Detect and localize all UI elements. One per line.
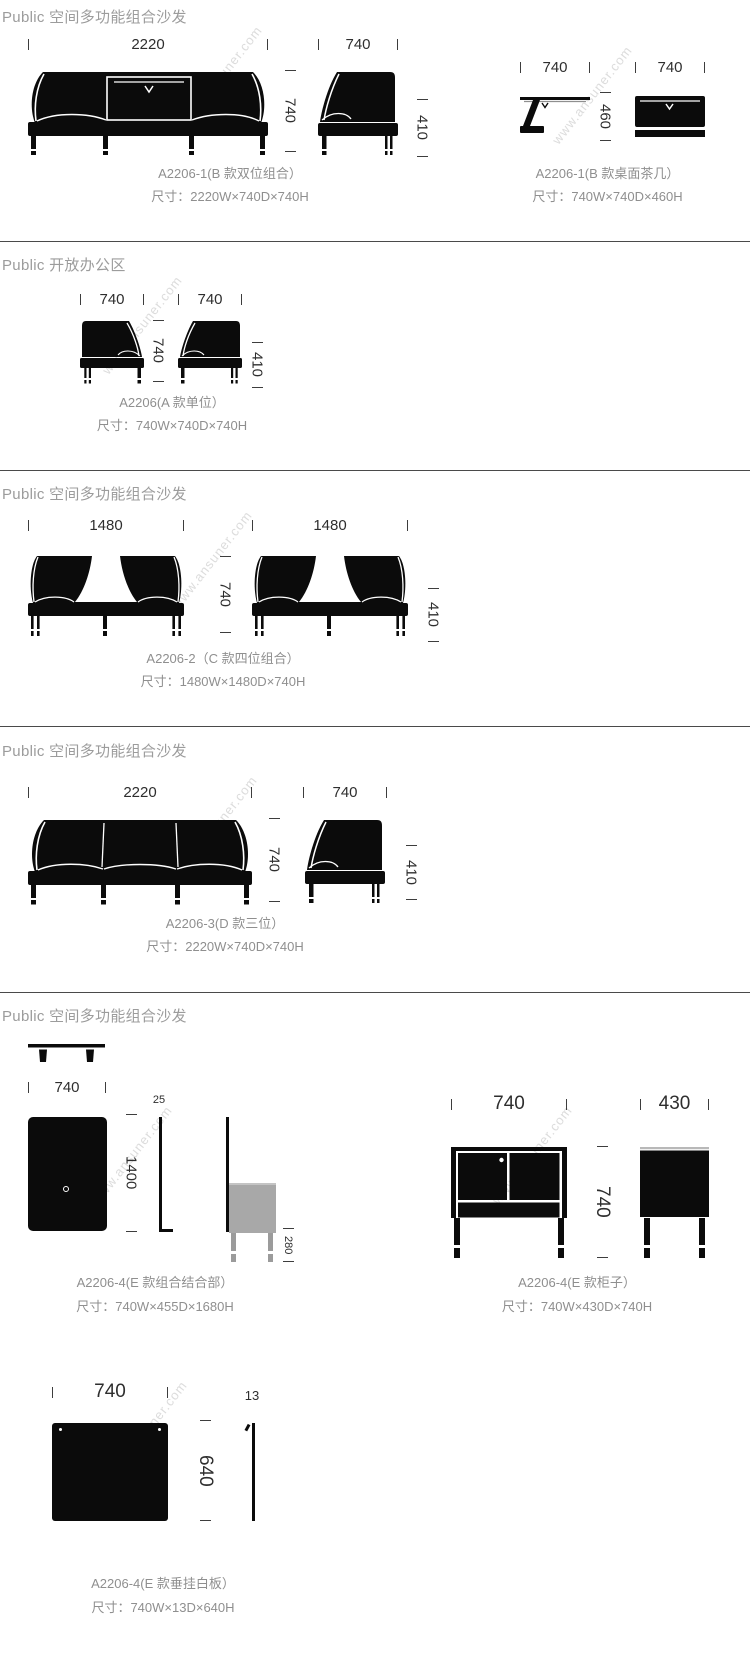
dim-depth: 740: [150, 320, 166, 382]
whiteboard-side-drawing: [252, 1423, 255, 1521]
item-name: A2206-4(E 款柜子）: [427, 1272, 727, 1291]
cabinet-leg: [268, 1233, 273, 1251]
tick: [167, 1387, 168, 1398]
dim-sofa-width: 2220: [28, 783, 252, 801]
dim-sofa-height: 740: [282, 70, 298, 152]
back-to-back-sofa-drawing: [28, 553, 184, 639]
tick: [153, 381, 164, 382]
dim-cabinet-height: 740: [594, 1146, 610, 1258]
dim-value: 740: [217, 582, 234, 607]
section-header: Public 空间多功能组合沙发: [2, 1005, 187, 1026]
screen-panel-foot: [159, 1229, 173, 1232]
tea-table-front-view-drawing: [635, 95, 705, 141]
tick: [386, 787, 387, 798]
section-divider: [0, 726, 750, 727]
dim-value: 1480: [29, 517, 183, 534]
tick: [708, 1099, 709, 1110]
dim-seat-height: 410: [403, 845, 419, 900]
tea-table-side-view-drawing: [520, 95, 590, 141]
tick: [597, 1257, 608, 1258]
dim-value: 410: [403, 860, 420, 885]
section-header: Public 空间多功能组合沙发: [2, 483, 187, 504]
section-divider: [0, 992, 750, 993]
two-seat-sofa-front-drawing: [28, 70, 268, 155]
tick: [220, 556, 231, 557]
whiteboard-front-drawing: [52, 1423, 168, 1521]
tick: [283, 1261, 294, 1262]
dim-seat-height: 410: [414, 99, 430, 157]
tick: [126, 1114, 137, 1115]
dim-seat-height: 410: [425, 588, 441, 642]
dim-sofa-height: 740: [266, 818, 282, 902]
sofa-side-view-drawing: [305, 818, 385, 903]
dim-side-width: 740: [303, 783, 387, 801]
panel-grommet: [63, 1186, 69, 1192]
dim-shelf-height: 280: [280, 1228, 296, 1262]
tick: [105, 1082, 106, 1093]
cabinet-leg-foot: [268, 1254, 273, 1262]
tick: [183, 520, 184, 531]
dim-value: 740: [319, 36, 397, 53]
dim-value: 740: [521, 59, 589, 76]
tick: [428, 641, 439, 642]
tick: [600, 92, 611, 93]
tick: [267, 39, 268, 50]
dim-board-thickness: 13: [238, 1388, 266, 1403]
item-size: 尺寸：740W×740D×460H: [465, 186, 750, 205]
dim-chair2-width: 740: [178, 290, 242, 308]
section-header: Public 空间多功能组合沙发: [2, 740, 187, 761]
hanging-hole: [158, 1428, 161, 1431]
dim-value: 410: [249, 352, 266, 377]
item-name: A2206-3(D 款三位）: [75, 913, 375, 932]
item-size: 尺寸：740W×430D×740H: [427, 1296, 727, 1315]
tick: [428, 588, 439, 589]
section-divider: [0, 241, 750, 242]
dim-value: 740: [636, 59, 704, 76]
dim-seat-height: 410: [249, 342, 265, 388]
dim-value: 740: [591, 1186, 613, 1218]
dim-value: 740: [53, 1381, 167, 1403]
hanging-hole: [59, 1428, 62, 1431]
dim-value: 2220: [29, 784, 251, 801]
tick: [417, 156, 428, 157]
bench-top-view-drawing: [28, 1044, 105, 1063]
dim-right-width: 1480: [252, 516, 408, 534]
item-size: 尺寸：740W×455D×1680H: [5, 1296, 305, 1315]
tick: [704, 62, 705, 73]
tick: [251, 787, 252, 798]
tick: [285, 151, 296, 152]
dim-left-width: 1480: [28, 516, 184, 534]
dim-cabinet-depth: 430: [640, 1095, 709, 1113]
dim-value: 740: [282, 98, 299, 123]
sofa-side-view-drawing: [318, 70, 398, 155]
dim-sofa-width: 2220: [28, 35, 268, 53]
dim-value: 740: [150, 338, 167, 363]
dim-value: 740: [266, 847, 283, 872]
item-size: 尺寸：740W×740D×740H: [22, 415, 322, 434]
dim-value: 740: [179, 291, 241, 308]
tick: [600, 140, 611, 141]
item-name: A2206-1(B 款双位组合）: [80, 163, 380, 182]
section-divider: [0, 470, 750, 471]
dim-side-width: 740: [318, 35, 398, 53]
dim-value: 430: [641, 1093, 708, 1115]
dim-board-height: 640: [197, 1420, 213, 1521]
screen-panel-side-drawing: [159, 1117, 162, 1231]
tick: [285, 70, 296, 71]
dim-value: 740: [29, 1079, 105, 1096]
lounge-chair-side-view-drawing: [178, 320, 242, 384]
cabinet-leg: [231, 1233, 236, 1251]
tick: [417, 99, 428, 100]
tick: [153, 320, 164, 321]
item-size: 尺寸：740W×13D×640H: [13, 1597, 313, 1616]
tick: [407, 520, 408, 531]
dim-value: 740: [304, 784, 386, 801]
dim-value: 410: [425, 602, 442, 627]
dim-table-height: 460: [597, 92, 613, 141]
dim-value: 740: [81, 291, 143, 308]
three-seat-sofa-front-drawing: [28, 818, 252, 905]
tick: [252, 342, 263, 343]
item-name: A2206(A 款单位）: [22, 392, 322, 411]
section-header: Public 空间多功能组合沙发: [2, 6, 187, 27]
item-name: A2206-4(E 款垂挂白板）: [13, 1573, 313, 1592]
spec-sheet-page: www.ansuner.com www.ansuner.com www.ansu…: [0, 0, 750, 1659]
tick: [269, 818, 280, 819]
tick: [406, 845, 417, 846]
dim-value: 740: [452, 1093, 566, 1115]
tick: [269, 901, 280, 902]
tick: [200, 1420, 211, 1421]
dim-value: 2220: [29, 36, 267, 53]
screen-panel-front-drawing: [28, 1117, 107, 1231]
tick: [252, 387, 263, 388]
dim-table-width: 740: [520, 58, 590, 76]
back-to-back-sofa-drawing: [252, 553, 408, 639]
dim-value: 410: [414, 115, 431, 140]
item-name: A2206-1(B 款桌面茶几）: [465, 163, 750, 182]
tick: [126, 1231, 137, 1232]
tick: [597, 1146, 608, 1147]
tick: [143, 294, 144, 305]
dim-panel-width: 740: [28, 1078, 106, 1096]
dim-table-front-width: 740: [635, 58, 705, 76]
dim-value: 1400: [123, 1156, 140, 1189]
whiteboard-hook: [245, 1424, 250, 1431]
combination-cabinet-side: [229, 1183, 276, 1233]
tick: [283, 1228, 294, 1229]
dim-panel-height: 1400: [123, 1114, 139, 1232]
dim-height: 740: [217, 556, 233, 633]
dim-chair1-width: 740: [80, 290, 144, 308]
dim-value: 280: [282, 1236, 294, 1254]
tick: [589, 62, 590, 73]
item-size: 尺寸：1480W×1480D×740H: [73, 671, 373, 690]
item-name: A2206-4(E 款组合结合部）: [5, 1272, 305, 1291]
item-size: 尺寸：2220W×740D×740H: [80, 186, 380, 205]
tick: [200, 1520, 211, 1521]
dim-cabinet-width: 740: [451, 1095, 567, 1113]
dim-panel-thickness: 25: [148, 1094, 170, 1106]
dim-value: 1480: [253, 517, 407, 534]
cabinet-leg-foot: [231, 1254, 236, 1262]
tick: [220, 632, 231, 633]
cabinet-front-view-drawing: [451, 1147, 567, 1259]
dim-value: 460: [597, 104, 614, 129]
cabinet-side-view-drawing: [640, 1147, 709, 1259]
item-size: 尺寸：2220W×740D×740H: [75, 936, 375, 955]
lounge-chair-side-view-drawing: [80, 320, 144, 384]
dim-value: 640: [194, 1455, 216, 1487]
section-header: Public 开放办公区: [2, 254, 126, 275]
item-name: A2206-2（C 款四位组合）: [73, 648, 373, 667]
tick: [397, 39, 398, 50]
tick: [406, 899, 417, 900]
tick: [566, 1099, 567, 1110]
tick: [241, 294, 242, 305]
dim-board-width: 740: [52, 1383, 168, 1401]
